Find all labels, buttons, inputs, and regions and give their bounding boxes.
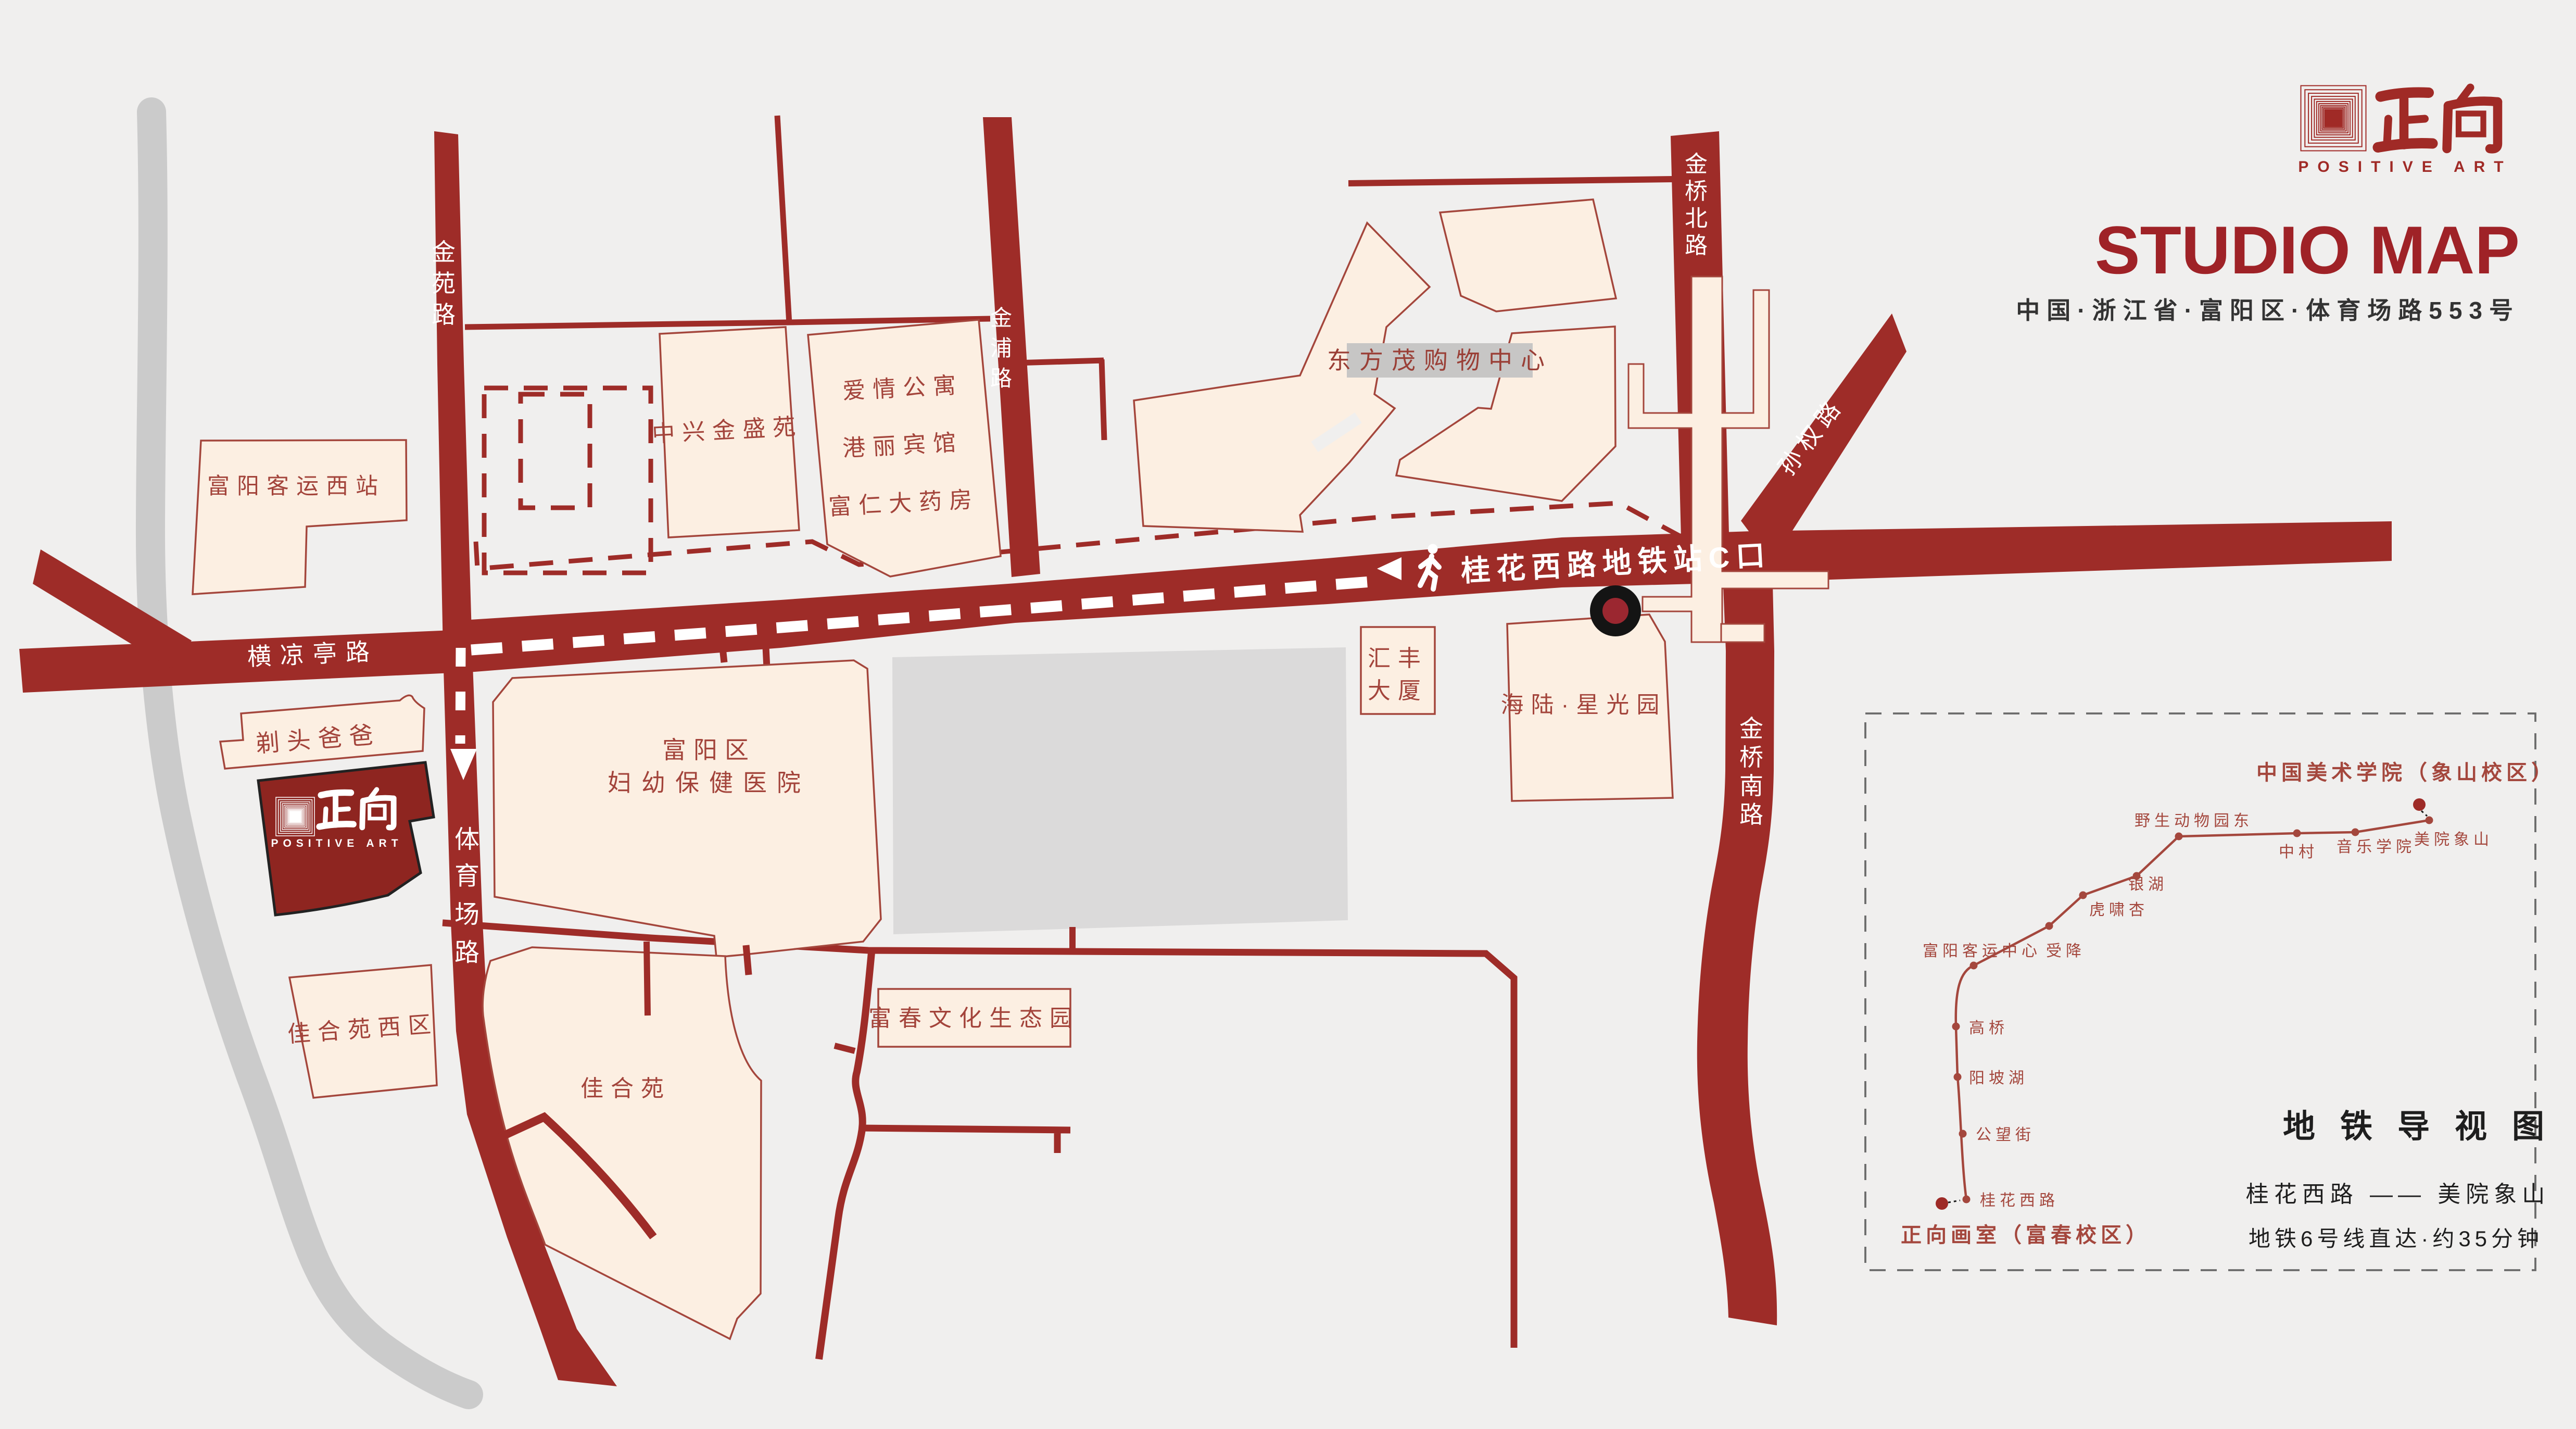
svg-text:南: 南 [1739, 772, 1763, 799]
svg-text:大厦: 大厦 [1368, 678, 1428, 704]
svg-text:桥: 桥 [1739, 744, 1763, 771]
svg-text:正向画室（富春校区）: 正向画室（富春校区） [1901, 1224, 2151, 1247]
svg-text:中国美术学院（象山校区）: 中国美术学院（象山校区） [2256, 761, 2556, 784]
svg-text:金: 金 [990, 306, 1012, 330]
svg-text:育: 育 [454, 862, 479, 890]
svg-text:桂花西路: 桂花西路 [1980, 1192, 2059, 1209]
svg-text:富阳客运西站: 富阳客运西站 [207, 474, 385, 499]
svg-text:地铁6号线直达·约35分钟: 地铁6号线直达·约35分钟 [2249, 1226, 2543, 1251]
svg-text:横凉亭路: 横凉亭路 [247, 638, 379, 671]
svg-text:路: 路 [1685, 233, 1708, 258]
svg-text:金: 金 [1739, 715, 1763, 742]
svg-text:路: 路 [432, 301, 456, 328]
svg-text:富阳区: 富阳区 [662, 736, 756, 763]
svg-text:海陆·星光园: 海陆·星光园 [1501, 692, 1667, 718]
svg-text:美院象山: 美院象山 [2414, 831, 2493, 848]
svg-text:路: 路 [990, 366, 1012, 391]
svg-text:北: 北 [1685, 206, 1708, 231]
svg-text:路: 路 [454, 939, 479, 967]
svg-text:汇丰: 汇丰 [1368, 646, 1428, 671]
svg-text:体: 体 [454, 826, 479, 854]
svg-text:STUDIO MAP: STUDIO MAP [2095, 212, 2520, 288]
svg-text:音乐学院: 音乐学院 [2337, 838, 2416, 856]
svg-text:受降: 受降 [2046, 943, 2086, 960]
svg-text:浦: 浦 [990, 336, 1012, 360]
svg-text:妇幼保健医院: 妇幼保健医院 [608, 769, 811, 796]
svg-text:中村: 中村 [2279, 844, 2318, 861]
svg-text:地铁导视图: 地铁导视图 [2283, 1109, 2569, 1145]
svg-text:野生动物园东: 野生动物园东 [2135, 812, 2253, 830]
svg-text:路: 路 [1739, 801, 1763, 828]
svg-text:金: 金 [1685, 152, 1708, 177]
svg-text:阳坡湖: 阳坡湖 [1969, 1070, 2028, 1087]
svg-text:高桥: 高桥 [1969, 1020, 2009, 1037]
svg-text:虎啸杏: 虎啸杏 [2089, 901, 2149, 919]
svg-text:场: 场 [454, 901, 479, 929]
svg-text:桥: 桥 [1685, 179, 1708, 204]
svg-text:金: 金 [432, 239, 456, 266]
svg-text:富春文化生态园: 富春文化生态园 [868, 1006, 1080, 1031]
svg-text:桂花西路 —— 美院象山: 桂花西路 —— 美院象山 [2246, 1182, 2550, 1207]
svg-text:银湖: 银湖 [2128, 876, 2168, 893]
svg-text:POSITIVE ART: POSITIVE ART [271, 837, 402, 849]
svg-text:中国·浙江省·富阳区·体育场路553号: 中国·浙江省·富阳区·体育场路553号 [2016, 297, 2520, 324]
svg-text:POSITIVE ART: POSITIVE ART [2298, 158, 2512, 176]
svg-text:公望街: 公望街 [1976, 1126, 2035, 1144]
svg-text:佳合苑: 佳合苑 [580, 1076, 671, 1101]
svg-text:富阳客运中心: 富阳客运中心 [1923, 943, 2041, 960]
svg-text:东方茂购物中心: 东方茂购物中心 [1327, 347, 1553, 374]
svg-text:苑: 苑 [432, 270, 456, 297]
